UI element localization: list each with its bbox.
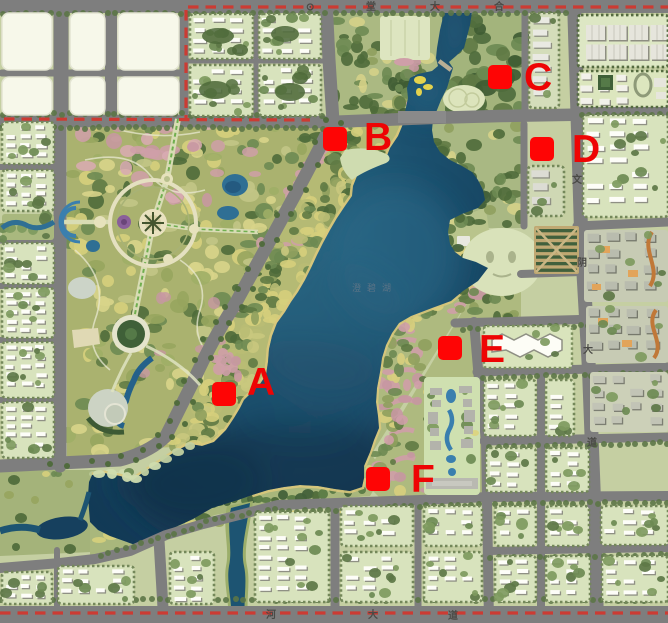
svg-text:道: 道 bbox=[448, 609, 458, 622]
svg-text:道: 道 bbox=[587, 436, 597, 449]
svg-text:B: B bbox=[364, 116, 392, 159]
svg-text:A: A bbox=[247, 361, 275, 404]
svg-text:合: 合 bbox=[493, 0, 505, 13]
svg-text:大: 大 bbox=[430, 0, 440, 13]
svg-text:E: E bbox=[479, 328, 505, 371]
svg-text:阴: 阴 bbox=[577, 257, 587, 269]
svg-text:堂: 堂 bbox=[366, 0, 376, 13]
svg-text:D: D bbox=[572, 128, 600, 171]
svg-text:大: 大 bbox=[583, 343, 593, 356]
svg-text:河: 河 bbox=[266, 609, 276, 621]
svg-text:⊙: ⊙ bbox=[306, 2, 314, 13]
svg-text:澄碧湖: 澄碧湖 bbox=[352, 282, 397, 293]
svg-text:文: 文 bbox=[572, 173, 583, 186]
svg-text:大: 大 bbox=[368, 608, 378, 621]
svg-text:F: F bbox=[411, 458, 435, 501]
svg-text:C: C bbox=[524, 56, 552, 99]
